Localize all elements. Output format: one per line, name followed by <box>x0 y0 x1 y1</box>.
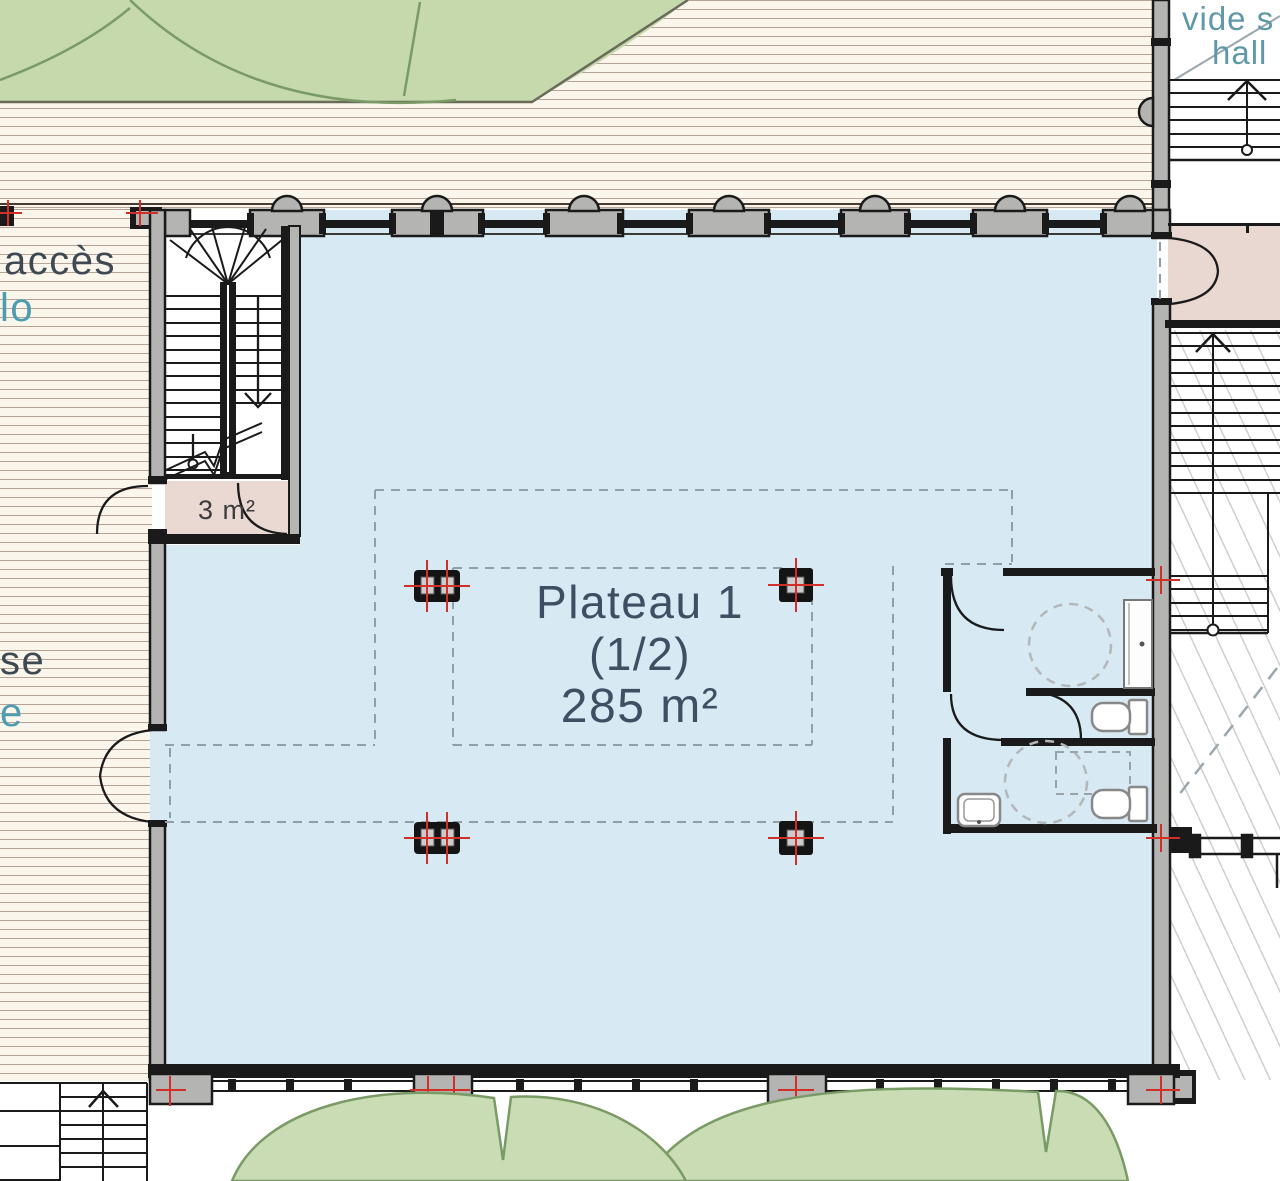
trees-bottom <box>232 1088 1128 1181</box>
plateau-name-label: Plateau 1 <box>440 578 840 626</box>
vide-sur-hall-label: vide s <box>1182 2 1274 37</box>
bottom-window-wall <box>148 1064 1180 1104</box>
plateau-fraction-label: (1/2) <box>440 630 840 678</box>
terrace-label-fragment1: se <box>0 640 45 682</box>
external-stair-bottom-left <box>0 1083 147 1181</box>
acces-label-line2: lo <box>0 287 34 329</box>
stairwell-hatch-area <box>1168 330 1280 1080</box>
hall-label: hall <box>1212 36 1267 71</box>
staircase-top-left <box>165 226 300 536</box>
vestibule-floor <box>1168 226 1280 326</box>
floor-plan: accès lo se e 3 m² Plateau 1 (1/2) 285 m… <box>0 0 1280 1181</box>
left-wall <box>150 210 165 1080</box>
wc-block <box>941 568 1157 834</box>
vestibule <box>1160 223 1280 328</box>
acces-label: accès <box>4 240 116 282</box>
plateau-area-label: 285 m² <box>440 682 840 732</box>
deck-top-terrace <box>0 0 1157 209</box>
terrace-label-fragment2: e <box>0 692 24 734</box>
stair-enclosure-interior <box>165 226 283 476</box>
column-single-bottom <box>768 811 824 865</box>
column-double-bottom <box>404 812 470 864</box>
storage-room-area-label: 3 m² <box>172 496 282 524</box>
